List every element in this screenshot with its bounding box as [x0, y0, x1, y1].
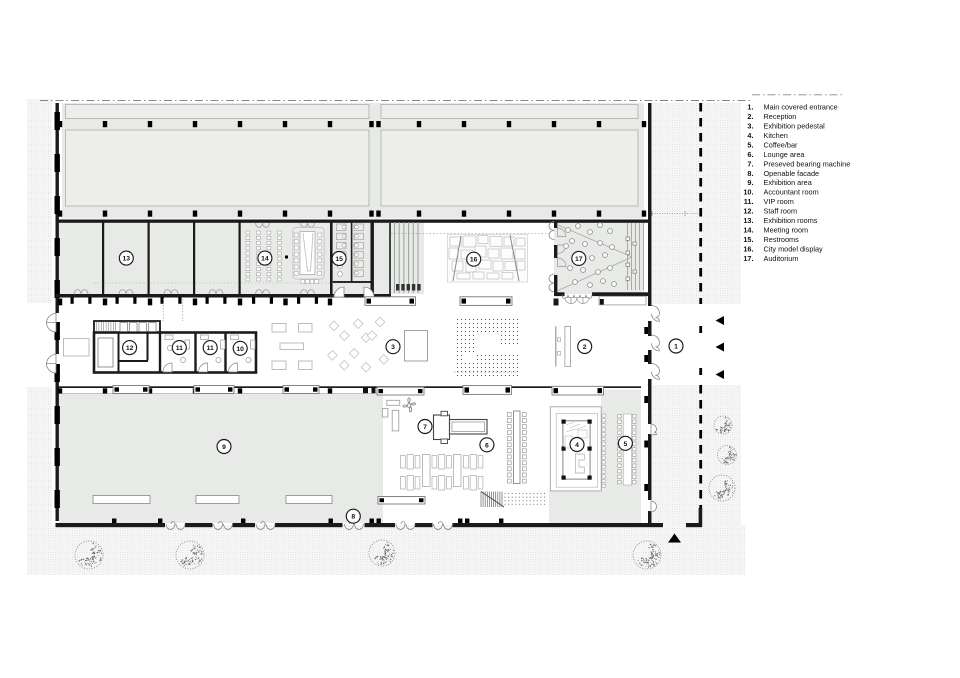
svg-text:17: 17 [575, 256, 583, 263]
svg-text:3.: 3. [747, 122, 753, 131]
svg-text:City model display: City model display [764, 244, 824, 253]
svg-text:Exhibition rooms: Exhibition rooms [764, 216, 818, 225]
svg-text:9.: 9. [747, 178, 753, 187]
svg-text:1.: 1. [747, 103, 753, 112]
svg-text:16: 16 [470, 257, 478, 264]
svg-text:Lounge area: Lounge area [764, 150, 806, 159]
svg-text:6.: 6. [747, 150, 753, 159]
svg-text:12.: 12. [743, 207, 753, 216]
svg-text:Staff room: Staff room [764, 207, 798, 216]
svg-text:7: 7 [423, 424, 427, 431]
svg-text:14.: 14. [743, 225, 753, 234]
svg-text:9: 9 [222, 444, 226, 451]
svg-text:Exhibition pedestal: Exhibition pedestal [764, 122, 826, 131]
svg-text:Meeting room: Meeting room [764, 225, 809, 234]
svg-text:Accountant room: Accountant room [764, 188, 819, 197]
svg-text:5: 5 [624, 441, 628, 448]
svg-text:15: 15 [335, 256, 343, 263]
svg-text:6: 6 [485, 442, 489, 449]
svg-text:13.: 13. [743, 216, 753, 225]
svg-text:10.: 10. [743, 188, 753, 197]
svg-text:Coffee/bar: Coffee/bar [764, 140, 799, 149]
svg-text:11: 11 [207, 345, 214, 352]
svg-text:VIP room: VIP room [764, 197, 794, 206]
svg-text:Auditorium: Auditorium [764, 254, 799, 263]
svg-text:3: 3 [391, 344, 395, 351]
svg-text:8.: 8. [747, 169, 753, 178]
svg-text:8: 8 [351, 514, 355, 521]
svg-text:14: 14 [261, 256, 269, 263]
svg-text:2: 2 [583, 344, 587, 351]
svg-text:Openable facade: Openable facade [764, 169, 820, 178]
svg-text:Exhibition area: Exhibition area [764, 178, 813, 187]
svg-text:7.: 7. [747, 159, 753, 168]
svg-text:4: 4 [575, 442, 579, 449]
svg-text:Reception: Reception [764, 112, 797, 121]
svg-text:16.: 16. [743, 244, 753, 253]
svg-text:11.: 11. [744, 197, 754, 206]
svg-text:13: 13 [123, 256, 131, 263]
svg-text:15.: 15. [743, 235, 753, 244]
svg-text:Restrooms: Restrooms [764, 235, 800, 244]
svg-text:5.: 5. [747, 140, 753, 149]
svg-text:Kitchen: Kitchen [764, 131, 788, 140]
svg-text:11: 11 [176, 345, 183, 352]
svg-text:2.: 2. [747, 112, 753, 121]
svg-text:12: 12 [126, 345, 134, 352]
svg-text:17.: 17. [743, 254, 753, 263]
svg-text:Main covered entrance: Main covered entrance [764, 103, 838, 112]
svg-text:4.: 4. [747, 131, 753, 140]
svg-text:1: 1 [674, 344, 678, 351]
svg-text:10: 10 [236, 346, 244, 353]
svg-text:Preseved bearing machine: Preseved bearing machine [764, 159, 851, 168]
